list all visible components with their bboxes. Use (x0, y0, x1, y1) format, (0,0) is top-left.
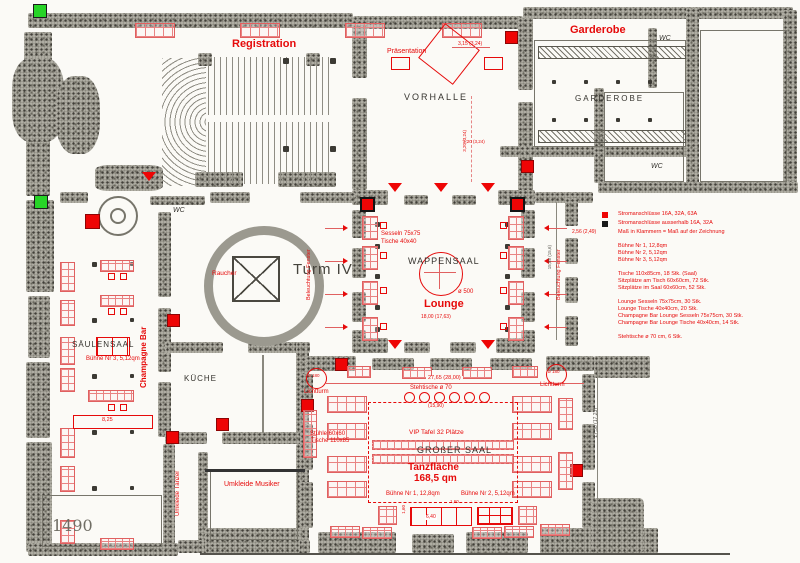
room-label-umkleide-taenzer: Umkleide Tänzer (175, 460, 181, 516)
window-lighting-label: Beleuchtung Fenster (307, 236, 313, 300)
legend-dim-sample: 2,56 (2,49) (572, 230, 596, 235)
kitchen-divider (262, 355, 264, 433)
lounge-label: Lounge (424, 299, 464, 310)
legend-line: Lounge Tische 40x40cm, 20 Stk. (618, 307, 698, 313)
seating-label: Tische 110x85 (311, 438, 349, 444)
power-outlet-marker (216, 418, 229, 431)
room-label-umkleide-musiker: Umkleide Musiker (224, 481, 280, 488)
stage-1 (410, 507, 472, 526)
column (505, 274, 510, 279)
column (330, 58, 336, 64)
wall-segment (404, 342, 430, 353)
room-label-praesentation: Präsentation (387, 48, 426, 55)
legend-power-marker (602, 212, 608, 218)
wall-segment (210, 192, 250, 203)
south-facade-line (200, 553, 730, 555)
legend-line: Sitzplätze im Saal 60x60cm, 52 Stk. (618, 286, 706, 292)
lounge-table (108, 404, 115, 411)
room-label-grosser-saal: GROßER SAAL (417, 446, 492, 455)
wall-segment (28, 296, 50, 358)
wall-segment (158, 382, 171, 437)
table-group (327, 456, 367, 473)
table-group (558, 398, 573, 430)
column (92, 262, 97, 267)
wall-segment (598, 182, 798, 193)
table-group (362, 527, 392, 539)
column (330, 146, 336, 152)
column (584, 80, 588, 84)
table-group (327, 396, 367, 413)
dim-label: 3,20 (3,24) (463, 130, 468, 152)
musiker-divider (205, 469, 305, 472)
power-outlet-marker (166, 431, 179, 444)
wall-segment (352, 98, 367, 190)
lounge-seat-group (508, 317, 524, 341)
room-label-turm: Turm IV (293, 262, 353, 277)
legend-line: Sitzplätze am Tisch 60x60cm, 72 Stk. (618, 279, 709, 285)
wall-segment (452, 195, 476, 205)
table-group (60, 428, 75, 458)
arrow-head-icon (544, 324, 549, 330)
power-outlet-marker (85, 214, 100, 229)
lounge-table (108, 308, 115, 315)
column (283, 146, 289, 152)
table-group (345, 23, 385, 38)
lounge-table (120, 404, 127, 411)
column (648, 80, 652, 84)
dim-label: (15,90) (428, 404, 444, 409)
room-label-raucher: Raucher (212, 271, 237, 278)
right-wing-rooms-outline (700, 30, 787, 182)
table-group (512, 456, 552, 473)
dim-label: 18,00 (17,63) (421, 315, 451, 320)
table-group (512, 423, 552, 440)
table-group (347, 366, 371, 378)
table-group (512, 481, 552, 498)
lounge-table (500, 252, 507, 259)
column (616, 118, 620, 122)
lounge-table (500, 323, 507, 330)
standing-table-circle (404, 392, 415, 403)
stage-label: Bühne Nr 3, 5,12qm (86, 356, 140, 362)
champagne-bar-label: Champagne Bar (140, 330, 148, 388)
stage-label: Bühne Nr 2, 5,12qm (461, 491, 515, 497)
standing-table-circle (434, 392, 445, 403)
dim-label: 1,60 (402, 505, 407, 514)
standing-table-circle (479, 392, 490, 403)
lounge-seat-group (508, 246, 524, 270)
stage-structure (56, 76, 100, 154)
dim-label: 8,25 (102, 418, 113, 424)
stage-2 (477, 507, 513, 525)
column (92, 318, 97, 323)
dimension-box (73, 415, 153, 429)
standing-table-circle (419, 392, 430, 403)
lounge-table (500, 222, 507, 229)
lounge-table (108, 273, 115, 280)
column (130, 374, 134, 378)
power-outlet-marker (505, 31, 518, 44)
wardrobe-counter (538, 130, 686, 143)
table-group (60, 300, 75, 326)
lounge-seat-group (362, 216, 378, 240)
table-group (135, 23, 175, 38)
theatre-curved-rows (162, 58, 206, 186)
table-group (504, 526, 534, 538)
wall-segment (535, 192, 593, 203)
wall-segment (592, 498, 644, 553)
wall-segment (150, 196, 205, 205)
door-marker-triangle (481, 340, 495, 349)
wall-segment (518, 18, 533, 90)
light-arrow (325, 294, 343, 295)
wall-segment (523, 7, 793, 19)
wall-segment (165, 342, 223, 353)
door-marker-triangle (388, 340, 402, 349)
room-label-wc: WC (659, 35, 671, 42)
table-group (330, 526, 360, 538)
legend-line: Bühne Nr 2, 5,12qm (618, 251, 667, 257)
presentation-table (484, 57, 503, 70)
lounge-seat-group (362, 246, 378, 270)
light-arrow (549, 228, 567, 229)
table-group (512, 396, 552, 413)
door-marker-triangle (142, 172, 156, 181)
spiral-stair-core (110, 208, 126, 224)
window-pier (565, 277, 578, 303)
lounge-table (500, 287, 507, 294)
power-outlet-marker (167, 314, 180, 327)
table-group (512, 366, 538, 378)
legend-line: Stromanschlüsse ausserhalb 16A, 32A (618, 221, 713, 227)
lounge-table (380, 287, 387, 294)
dance-floor-label: Tanzfläche (408, 463, 459, 473)
light-tower-circle (306, 368, 327, 389)
dimension-line (452, 47, 490, 48)
dim-label: 1,60 (450, 500, 459, 505)
room-label-wc: WC (173, 207, 185, 214)
wall-segment (404, 195, 428, 205)
lounge-seat-group (508, 281, 524, 305)
arrow-head-icon (544, 225, 549, 231)
wall-segment (28, 13, 353, 28)
table-group (88, 390, 134, 402)
room-label-registration: Registration (232, 39, 296, 50)
legend-line: Champagne Bar Lounge Tische 40x40cm, 14 … (618, 321, 739, 327)
legend-power-outside-marker (602, 221, 608, 227)
wall-segment (60, 192, 88, 203)
lounge-table (120, 308, 127, 315)
table-group (100, 538, 134, 550)
room-label-garderobe-room: GARDEROBE (575, 95, 644, 103)
wall-segment (594, 356, 650, 378)
door-marker-triangle (388, 183, 402, 192)
legend-line: Stromanschlüsse 16A, 32A, 63A (618, 212, 697, 218)
power-outlet-marker (510, 197, 525, 212)
column (92, 374, 97, 379)
table-group (100, 295, 134, 307)
legend-line: Stehtische ø 70 cm, 6 Stk. (618, 335, 682, 341)
column (130, 430, 134, 434)
room-label-wappensaal: WAPPENSAAL (408, 257, 480, 266)
door-marker-triangle (434, 183, 448, 192)
wall-segment (582, 374, 595, 412)
standing-tables-label: Stehtische ø 70 (410, 385, 452, 391)
dim-label: 6,40 (425, 515, 437, 520)
dance-floor-area-label: 168,5 qm (414, 474, 457, 484)
dim-label: 15,88 (15,6) (548, 245, 553, 269)
column (505, 305, 510, 310)
table-group (100, 260, 134, 272)
lounge-table (120, 273, 127, 280)
dim-label: 27,65 (28,00) (426, 376, 463, 382)
green-marker (33, 4, 47, 18)
legend-line: Champagne Bar Lounge Sesseln 75x75cm, 30… (618, 314, 743, 320)
light-arrow (325, 327, 343, 328)
table-group (60, 262, 75, 292)
table-group (60, 368, 75, 392)
seating-label: Stühle 60x60 (310, 431, 345, 437)
corner-table (378, 506, 397, 525)
wardrobe-counter (538, 46, 686, 59)
column (552, 80, 556, 84)
diameter-label: ø 180 (308, 374, 320, 379)
presentation-table (391, 57, 410, 70)
column (552, 118, 556, 122)
wall-segment (26, 362, 50, 438)
standing-table-circle (464, 392, 475, 403)
light-tower-label: Lichtturm (304, 389, 329, 395)
light-tower-label: Lichtturm (540, 382, 565, 388)
lounge-table (380, 252, 387, 259)
handwritten-number: 1490 (52, 518, 93, 534)
table-group (240, 23, 280, 38)
room-label-vorhalle: VORHALLE (404, 93, 468, 102)
column (130, 318, 134, 322)
window-lighting-label: Beleuchtung Fenster (557, 236, 563, 300)
window-pier (565, 198, 578, 226)
table-group (462, 367, 492, 379)
legend-line: Bühne Nr 1, 12,8qm (618, 244, 667, 250)
column (130, 486, 134, 490)
table-group (327, 481, 367, 498)
room-label-saeulensaal: SÄULENSAAL (72, 341, 134, 349)
wall-segment (450, 342, 476, 353)
lounge-seat-group (508, 216, 524, 240)
column (375, 305, 380, 310)
column (92, 486, 97, 491)
door-marker-triangle (481, 183, 495, 192)
table-group (558, 452, 573, 490)
legend-line: Maß in Klammern = Maß auf der Zeichnung (618, 230, 725, 236)
power-outlet-marker (521, 160, 534, 173)
corner-table (518, 506, 537, 525)
stage-label: Bühne Nr 1, 12,8qm (386, 491, 440, 497)
table-group (472, 527, 502, 539)
dim-label: 3,15 (3,24) (458, 42, 482, 47)
power-outlet-marker (360, 197, 375, 212)
room-label-wc: WC (651, 163, 663, 170)
arrow-head-icon (544, 291, 549, 297)
tower-stair-core (232, 256, 280, 302)
arrow-head-icon (343, 324, 348, 330)
window-pier (565, 316, 578, 346)
standing-table-circle (449, 392, 460, 403)
seating-label: Sesseln 75x75 (381, 231, 420, 237)
green-marker (34, 195, 48, 209)
light-arrow (549, 327, 567, 328)
column (92, 430, 97, 435)
floor-plan: Registration Präsentation 3,15 (3,24) Ga… (0, 0, 800, 563)
legend-line: Bühne Nr 3, 5,12qm (618, 258, 667, 264)
column (283, 58, 289, 64)
seating-label: Tische 40x40 (381, 239, 416, 245)
wall-segment (222, 432, 310, 444)
table-group (540, 524, 570, 536)
lounge-seat-group (362, 317, 378, 341)
arrow-head-icon (343, 225, 348, 231)
wall-segment (412, 534, 454, 553)
diameter-label: ø 180 (548, 370, 560, 375)
wall-segment (158, 212, 171, 297)
dim-label: 17,38 (17,23) (594, 408, 599, 438)
lounge-table (380, 222, 387, 229)
lounge-seat-group (362, 281, 378, 305)
lounge-cross (424, 272, 456, 273)
wall-segment (26, 200, 54, 292)
column (616, 80, 620, 84)
room-label-kueche: KÜCHE (184, 375, 217, 383)
theatre-seat-rows (208, 122, 330, 184)
column (584, 118, 588, 122)
column (375, 274, 380, 279)
diameter-label: ø 500 (458, 289, 473, 295)
wall-segment (300, 192, 355, 203)
legend-line: Tische 110x85cm, 18 Stk. (Saal) (618, 272, 697, 278)
light-arrow (325, 228, 343, 229)
wall-segment (686, 8, 699, 188)
table-group (60, 466, 75, 492)
theatre-seat-rows (208, 57, 330, 115)
lounge-table (380, 323, 387, 330)
column (648, 118, 652, 122)
dimension-line (597, 368, 598, 532)
wall-segment (26, 138, 50, 196)
wall-segment (163, 444, 175, 544)
vip-table-label: VIP Tafel 32 Plätze (409, 430, 464, 437)
room-label-garderobe: Garderobe (570, 25, 626, 36)
legend-line: Lounge Sesseln 75x75cm, 30 Stk. (618, 300, 701, 306)
wall-segment (300, 482, 313, 528)
arrow-head-icon (343, 291, 348, 297)
